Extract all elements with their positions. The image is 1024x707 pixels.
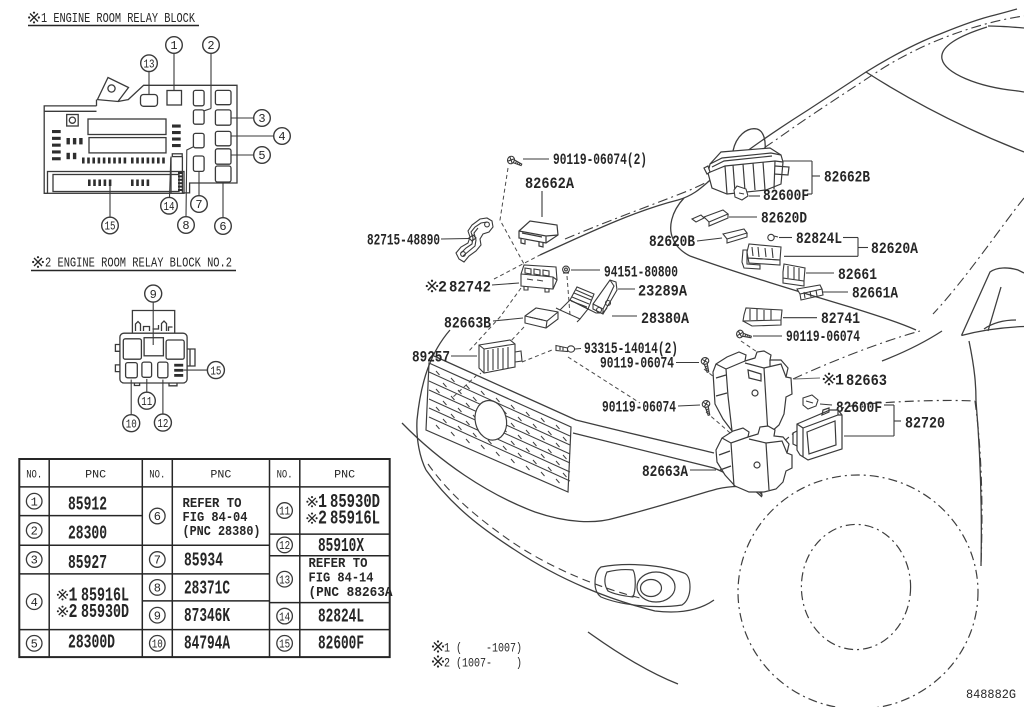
svg-text:8: 8 bbox=[154, 582, 161, 596]
svg-text:10: 10 bbox=[152, 638, 163, 652]
svg-text:5: 5 bbox=[258, 149, 265, 163]
svg-text:15: 15 bbox=[105, 220, 116, 234]
svg-text:NO.: NO. bbox=[277, 470, 293, 482]
svg-text:NO.: NO. bbox=[149, 470, 165, 482]
svg-text:1: 1 bbox=[31, 495, 38, 509]
svg-text:2: 2 bbox=[31, 525, 38, 539]
svg-text:1 ENGINE ROOM RELAY BLOCK: 1 ENGINE ROOM RELAY BLOCK bbox=[41, 11, 195, 27]
svg-text:82663B: 82663B bbox=[444, 315, 491, 333]
svg-text:90119-06074(2): 90119-06074(2) bbox=[553, 151, 647, 169]
svg-text:8: 8 bbox=[182, 219, 189, 233]
svg-text:85934: 85934 bbox=[184, 550, 223, 572]
svg-text:82620A: 82620A bbox=[871, 240, 918, 258]
svg-text:82663A: 82663A bbox=[642, 463, 688, 481]
svg-text:15: 15 bbox=[279, 638, 290, 652]
svg-text:89257: 89257 bbox=[412, 349, 450, 367]
svg-text:9: 9 bbox=[154, 609, 161, 623]
svg-text:82661A: 82661A bbox=[852, 285, 898, 303]
svg-text:2 (1007- ): 2 (1007- ) bbox=[444, 656, 522, 671]
svg-text:(PNC 88263A: (PNC 88263A bbox=[309, 585, 394, 601]
svg-text:11: 11 bbox=[279, 505, 290, 519]
svg-text:82661: 82661 bbox=[838, 266, 877, 284]
svg-text:82824L: 82824L bbox=[318, 606, 364, 628]
svg-text:82824L: 82824L bbox=[796, 230, 842, 248]
svg-text:4: 4 bbox=[31, 596, 38, 610]
svg-text:13: 13 bbox=[144, 57, 155, 71]
svg-text:PNC: PNC bbox=[334, 470, 355, 482]
svg-text:1: 1 bbox=[835, 372, 844, 390]
svg-text:94151-80800: 94151-80800 bbox=[604, 264, 678, 282]
svg-text:6: 6 bbox=[219, 220, 226, 234]
svg-text:9: 9 bbox=[150, 288, 157, 302]
svg-text:(PNC 28380): (PNC 28380) bbox=[183, 524, 261, 540]
svg-text:85930D: 85930D bbox=[81, 601, 129, 623]
svg-text:90119-06074: 90119-06074 bbox=[602, 399, 676, 417]
svg-text:12: 12 bbox=[279, 539, 290, 553]
svg-text:3: 3 bbox=[258, 112, 265, 126]
svg-text:2 ENGINE ROOM RELAY BLOCK NO.2: 2 ENGINE ROOM RELAY BLOCK NO.2 bbox=[45, 256, 232, 272]
svg-text:82720: 82720 bbox=[905, 415, 945, 433]
svg-text:82662B: 82662B bbox=[824, 169, 870, 187]
svg-text:5: 5 bbox=[31, 638, 38, 652]
svg-text:4: 4 bbox=[278, 130, 285, 144]
svg-text:13: 13 bbox=[279, 573, 290, 587]
svg-text:85910X: 85910X bbox=[318, 535, 364, 557]
svg-text:3: 3 bbox=[31, 554, 38, 568]
svg-text:NO.: NO. bbox=[26, 470, 42, 482]
svg-text:87346K: 87346K bbox=[184, 605, 230, 627]
svg-text:85927: 85927 bbox=[68, 552, 107, 574]
svg-text:10: 10 bbox=[126, 417, 137, 431]
svg-text:14: 14 bbox=[279, 610, 290, 624]
svg-text:82600F: 82600F bbox=[836, 399, 882, 417]
svg-text:82663: 82663 bbox=[846, 372, 887, 390]
svg-text:82620B: 82620B bbox=[649, 233, 695, 251]
svg-text:14: 14 bbox=[164, 200, 175, 214]
svg-text:28300: 28300 bbox=[68, 523, 107, 545]
svg-text:12: 12 bbox=[157, 417, 168, 431]
svg-text:82742: 82742 bbox=[449, 279, 491, 297]
svg-text:2: 2 bbox=[318, 508, 327, 530]
svg-text:90119-06074: 90119-06074 bbox=[600, 355, 674, 373]
svg-text:90119-06074: 90119-06074 bbox=[786, 328, 860, 346]
svg-text:28380A: 28380A bbox=[641, 310, 689, 328]
svg-text:848882G: 848882G bbox=[966, 687, 1016, 702]
svg-text:82600F: 82600F bbox=[763, 187, 809, 205]
svg-text:1 ( -1007): 1 ( -1007) bbox=[444, 641, 522, 656]
svg-text:7: 7 bbox=[154, 554, 161, 568]
svg-text:2: 2 bbox=[207, 39, 214, 53]
svg-text:PNC: PNC bbox=[85, 470, 106, 482]
svg-text:82620D: 82620D bbox=[761, 210, 807, 228]
svg-text:7: 7 bbox=[195, 198, 202, 212]
svg-text:2: 2 bbox=[69, 601, 78, 623]
svg-text:82600F: 82600F bbox=[318, 633, 364, 655]
svg-text:82662A: 82662A bbox=[525, 175, 574, 193]
svg-text:28300D: 28300D bbox=[68, 632, 115, 654]
svg-text:28371C: 28371C bbox=[184, 577, 230, 599]
svg-text:PNC: PNC bbox=[210, 470, 231, 482]
svg-text:2: 2 bbox=[438, 279, 447, 297]
svg-text:85912: 85912 bbox=[68, 494, 107, 516]
svg-text:15: 15 bbox=[210, 364, 221, 378]
svg-text:11: 11 bbox=[141, 395, 152, 409]
svg-text:82741: 82741 bbox=[821, 310, 860, 328]
svg-text:23289A: 23289A bbox=[638, 283, 687, 301]
svg-text:84794A: 84794A bbox=[184, 633, 230, 655]
svg-text:85916L: 85916L bbox=[330, 508, 380, 530]
svg-text:6: 6 bbox=[154, 510, 161, 524]
svg-text:82715-48890: 82715-48890 bbox=[367, 232, 440, 250]
svg-text:1: 1 bbox=[170, 39, 177, 53]
